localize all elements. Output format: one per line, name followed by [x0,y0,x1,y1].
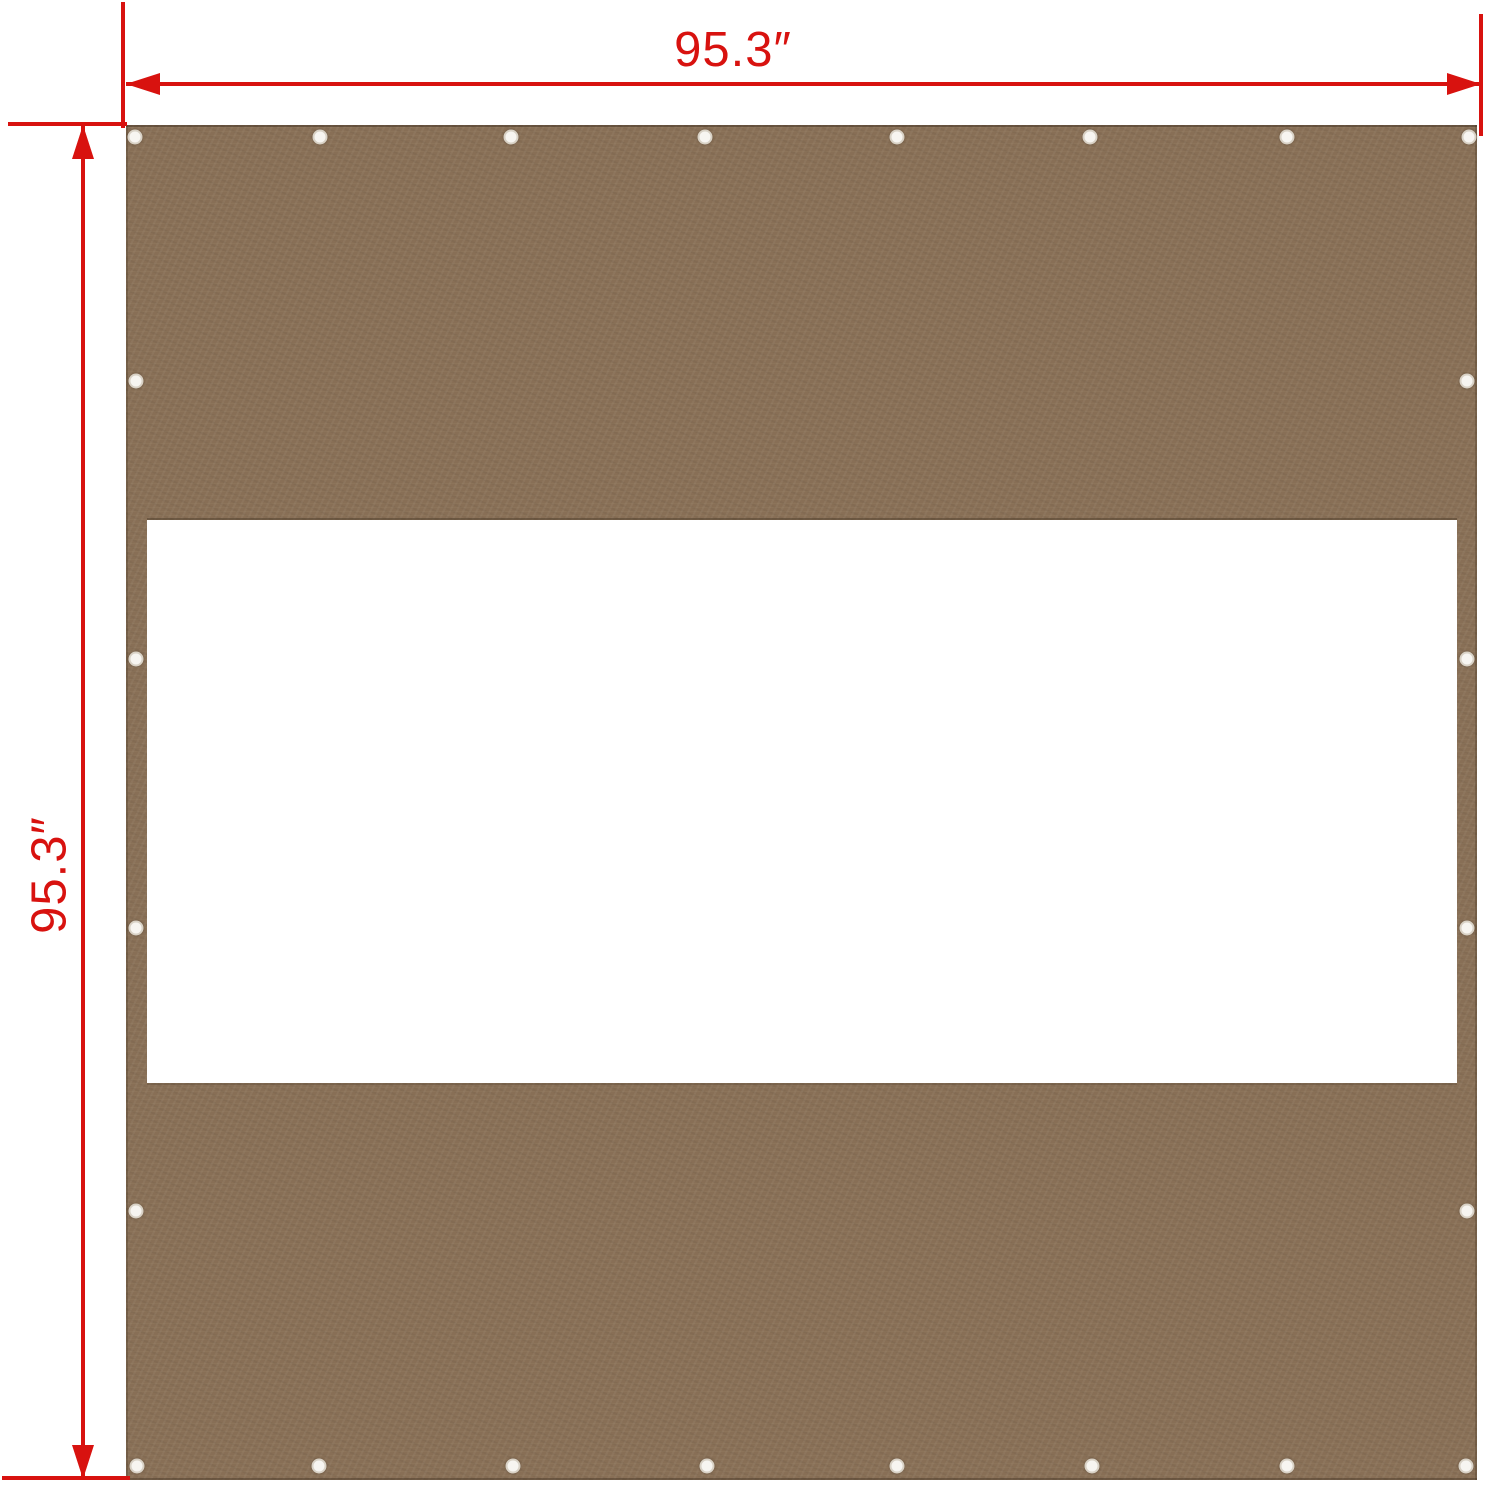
grommet-hole [128,130,143,145]
grommet-hole [129,1204,144,1219]
extension-line-left-top [8,122,127,126]
extension-line-top-left [121,2,125,128]
extension-line-left-bottom [2,1476,130,1480]
grommet-hole [129,921,144,936]
height-dimension-label: 95.3″ [26,816,75,934]
height-dimension-line [81,125,85,1479]
grommet-hole [1083,130,1098,145]
grommet-hole [1460,374,1475,389]
grommet-hole [129,374,144,389]
grommet-hole [1460,921,1475,936]
fabric-panel [126,125,1477,1480]
window-cutout [147,520,1457,1083]
arrow-down-icon [72,1445,94,1479]
dimension-diagram: 95.3″ 95.3″ [0,0,1485,1500]
grommet-hole [504,130,519,145]
width-dimension-label: 95.3″ [674,26,792,75]
grommet-hole [890,130,905,145]
grommet-hole [1460,1204,1475,1219]
grommet-hole [1085,1459,1100,1474]
grommet-hole [1462,130,1477,145]
grommet-hole [129,652,144,667]
grommet-hole [312,1459,327,1474]
grommet-hole [1280,1459,1295,1474]
grommet-hole [1460,652,1475,667]
grommet-hole [700,1459,715,1474]
grommet-hole [890,1459,905,1474]
grommet-hole [1459,1459,1474,1474]
arrow-right-icon [1447,73,1481,95]
grommet-hole [130,1459,145,1474]
arrow-left-icon [126,73,160,95]
arrow-up-icon [72,125,94,159]
grommet-hole [698,130,713,145]
grommet-hole [1280,130,1295,145]
width-dimension-line [126,82,1481,86]
grommet-hole [506,1459,521,1474]
grommet-hole [313,130,328,145]
